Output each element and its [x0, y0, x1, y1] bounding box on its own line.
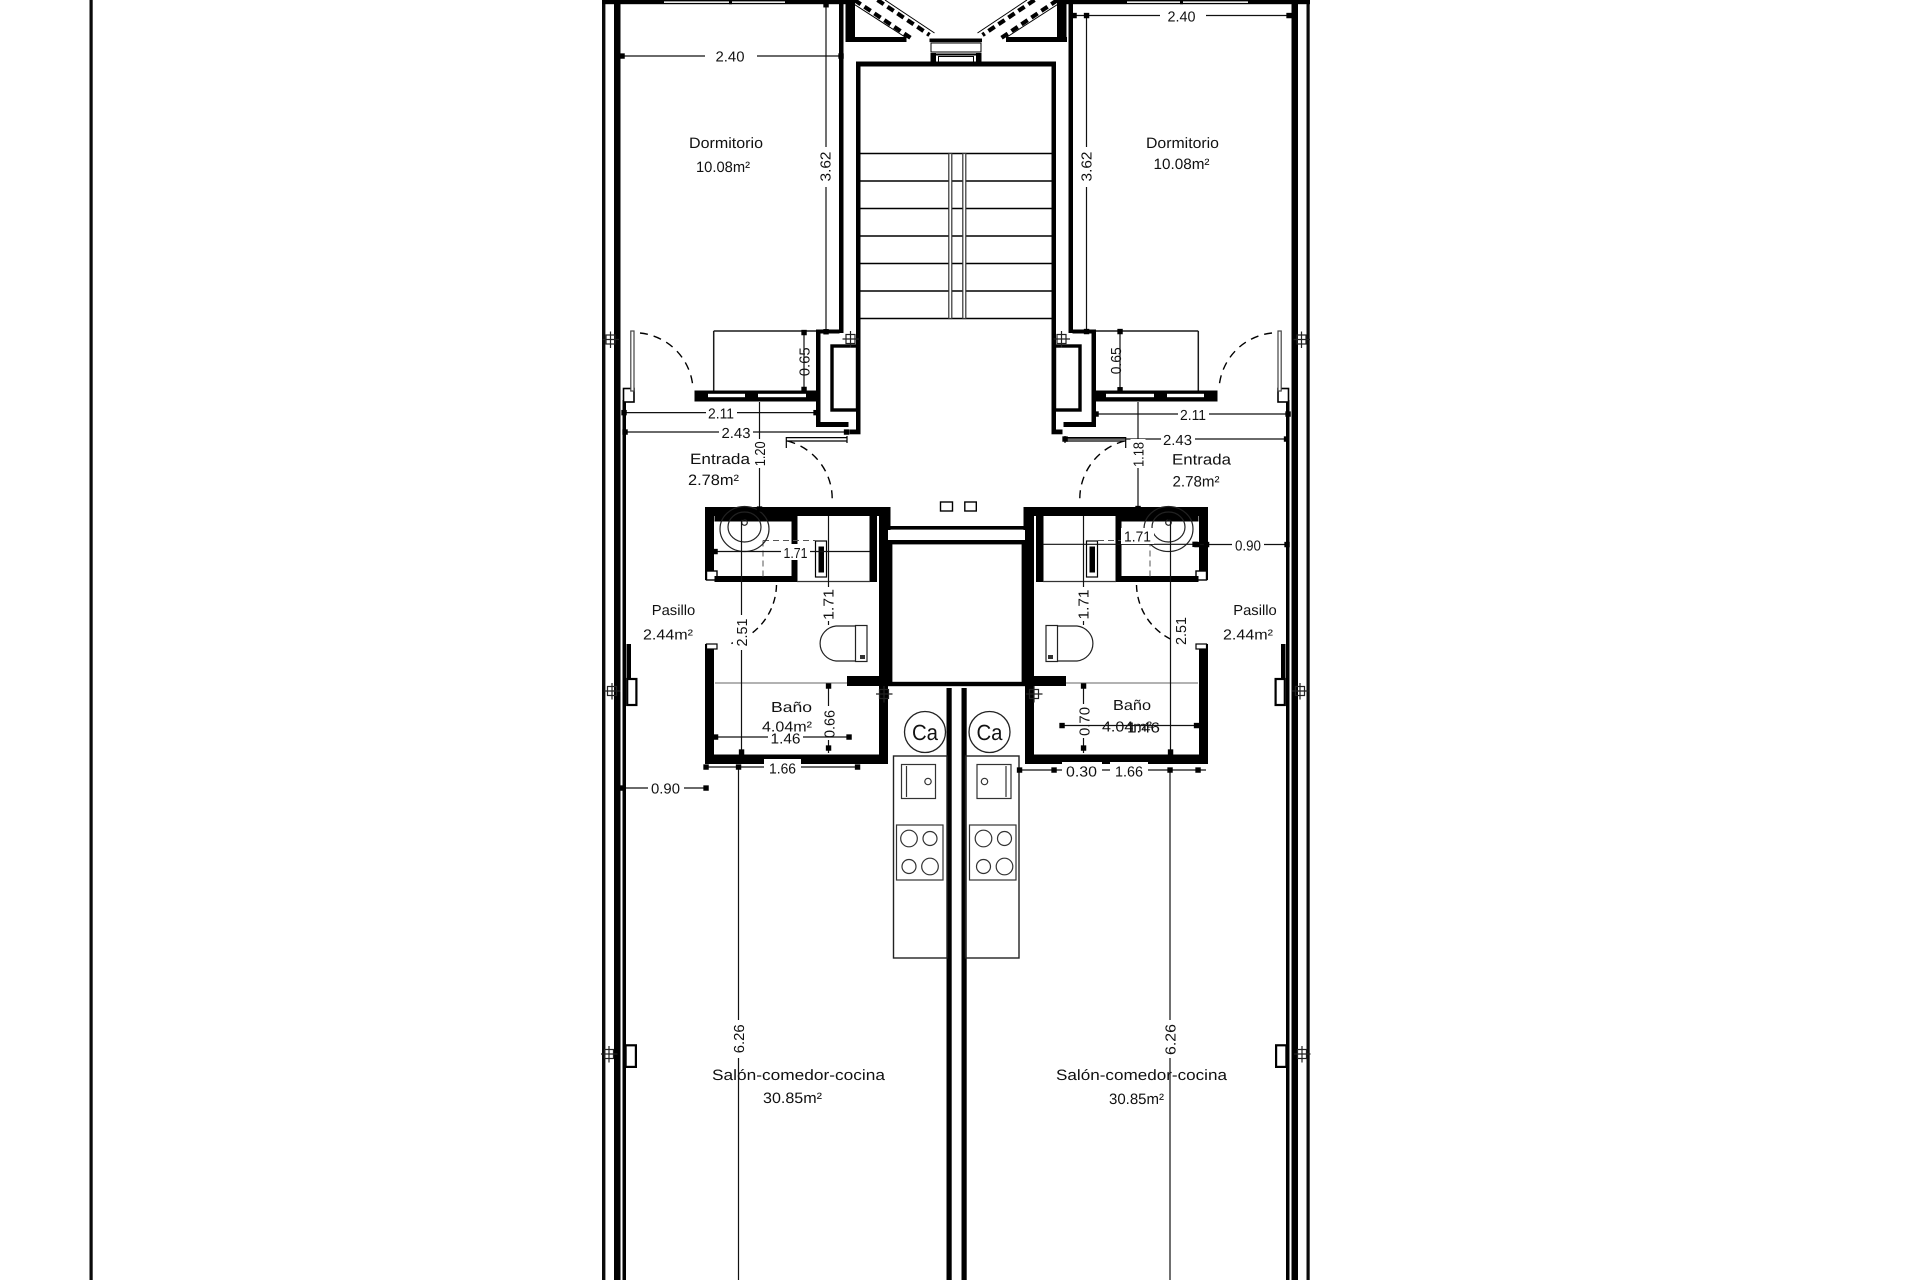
svg-text:0.90: 0.90 [1235, 539, 1261, 555]
svg-text:0.65: 0.65 [798, 347, 814, 376]
svg-text:2.78m²: 2.78m² [688, 472, 739, 489]
svg-text:2.40: 2.40 [1168, 10, 1196, 26]
svg-text:Ca: Ca [912, 720, 939, 745]
svg-text:Pasillo: Pasillo [652, 603, 696, 619]
svg-text:6.26: 6.26 [732, 1024, 748, 1053]
svg-text:2.40: 2.40 [716, 50, 745, 66]
svg-text:2.43: 2.43 [722, 426, 751, 442]
svg-text:10.08m²: 10.08m² [1154, 156, 1210, 173]
svg-text:2.11: 2.11 [1180, 408, 1206, 424]
svg-text:2.44m²: 2.44m² [643, 628, 693, 644]
svg-text:1.66: 1.66 [1115, 765, 1143, 781]
svg-text:2.43: 2.43 [1163, 433, 1192, 449]
svg-text:0.30: 0.30 [1066, 765, 1097, 781]
svg-text:4.04m²: 4.04m² [1102, 720, 1152, 736]
svg-text:0.90: 0.90 [651, 782, 680, 798]
svg-text:1.20: 1.20 [753, 441, 769, 466]
svg-text:30.85m²: 30.85m² [763, 1090, 822, 1107]
svg-text:0.70: 0.70 [1078, 707, 1094, 736]
svg-text:Dormitorio: Dormitorio [689, 135, 763, 152]
svg-text:Salón-comedor-cocina: Salón-comedor-cocina [712, 1067, 886, 1084]
svg-text:10.08m²: 10.08m² [696, 159, 750, 176]
svg-text:2.11: 2.11 [708, 407, 734, 423]
svg-text:3.62: 3.62 [1080, 152, 1096, 182]
svg-text:Salón-comedor-cocina: Salón-comedor-cocina [1056, 1067, 1228, 1084]
svg-text:1.18: 1.18 [1132, 442, 1148, 467]
svg-text:1.71: 1.71 [784, 546, 808, 562]
svg-text:30.85m²: 30.85m² [1109, 1091, 1164, 1108]
svg-text:2.51: 2.51 [735, 619, 751, 647]
svg-text:6.26: 6.26 [1164, 1024, 1180, 1055]
svg-text:Entrada: Entrada [1172, 452, 1232, 469]
svg-text:Entrada: Entrada [690, 451, 751, 468]
svg-text:3.62: 3.62 [819, 152, 835, 182]
svg-text:Pasillo: Pasillo [1233, 603, 1277, 619]
svg-text:2.51: 2.51 [1174, 617, 1190, 645]
svg-text:4.04m²: 4.04m² [762, 720, 812, 736]
svg-text:2.78m²: 2.78m² [1173, 474, 1220, 491]
svg-text:1.66: 1.66 [769, 762, 796, 778]
svg-text:Baño: Baño [771, 700, 812, 716]
svg-text:1.71: 1.71 [1077, 590, 1093, 620]
svg-text:Ca: Ca [977, 720, 1004, 745]
svg-text:0.66: 0.66 [823, 710, 839, 738]
svg-text:2.44m²: 2.44m² [1223, 628, 1273, 644]
svg-text:1.71: 1.71 [1124, 530, 1151, 546]
svg-text:1.71: 1.71 [822, 589, 838, 620]
svg-text:Dormitorio: Dormitorio [1146, 135, 1219, 152]
svg-text:Baño: Baño [1113, 698, 1151, 714]
svg-text:0.65: 0.65 [1109, 347, 1125, 374]
